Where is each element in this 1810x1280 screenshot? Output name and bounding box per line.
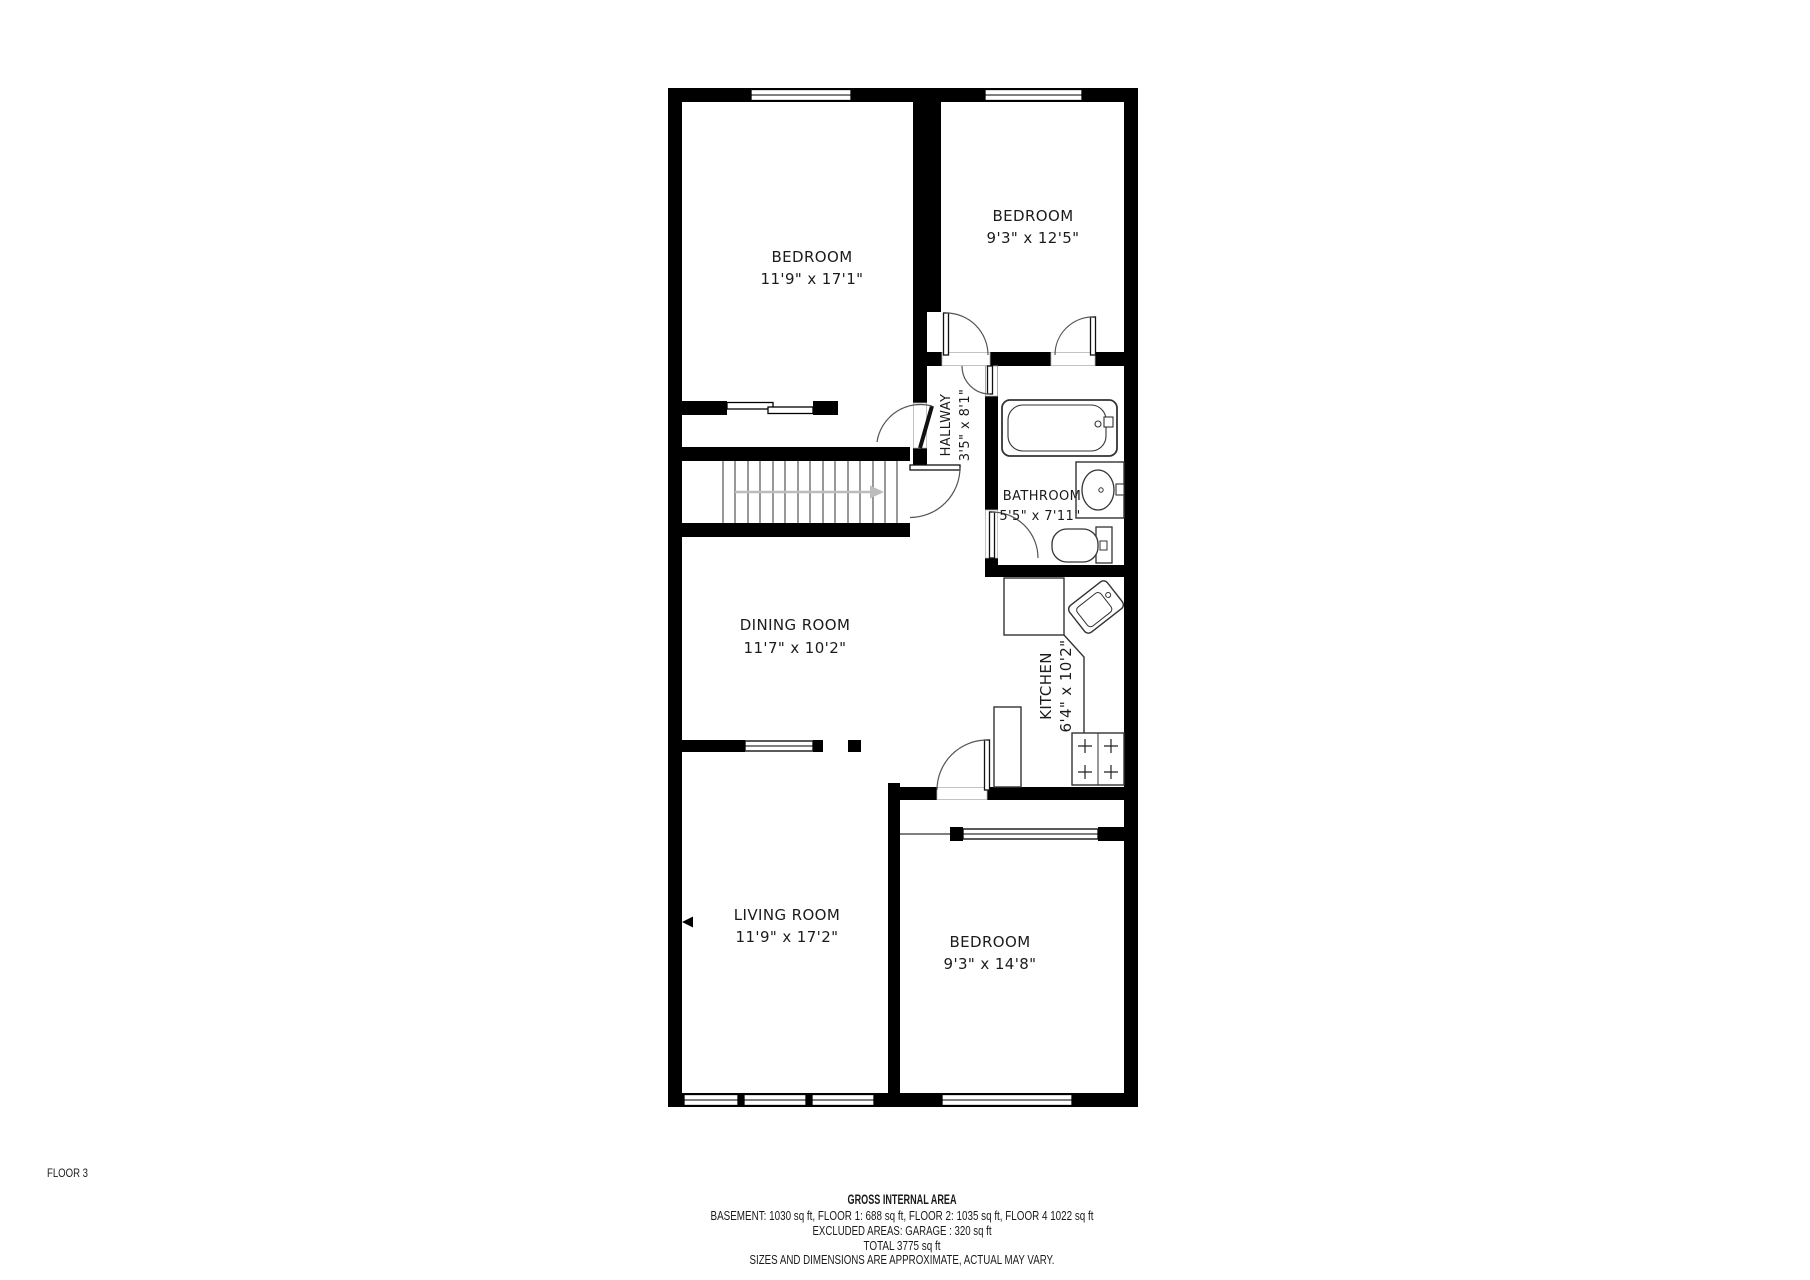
wall-right: [1124, 88, 1138, 1107]
window: [744, 1095, 806, 1106]
footer-total: TOTAL 3775 sq ft: [864, 1238, 941, 1253]
door-stairs-landing: [910, 465, 960, 518]
window: [942, 1095, 1072, 1106]
wall-stairs-top: [682, 447, 910, 461]
room-name: BEDROOM: [992, 207, 1073, 225]
footer-disclaimer: SIZES AND DIMENSIONS ARE APPROXIMATE, AC…: [750, 1252, 1055, 1267]
wall-closet-stub-left: [950, 827, 963, 841]
doorway: [937, 788, 987, 800]
room-dims: 11'9" x 17'1": [761, 270, 864, 288]
wall-mid-b: [990, 352, 1051, 366]
wall-dining-jamb: [848, 740, 861, 752]
closet-panels: [727, 403, 813, 414]
room-dims: 11'9" x 17'2": [736, 928, 839, 946]
room-name: BATHROOM: [1003, 489, 1081, 504]
window: [985, 90, 1082, 101]
doorway: [1051, 353, 1095, 366]
room-dims: 9'3" x 12'5": [987, 229, 1080, 247]
room-bathroom: BATHROOM 5'5" x 7'11": [999, 489, 1081, 524]
interior-window: [745, 741, 813, 751]
room-dims: 9'3" x 14'8": [944, 955, 1037, 973]
room-name: KITCHEN: [1037, 652, 1055, 720]
window: [684, 1095, 738, 1106]
window: [812, 1095, 874, 1106]
bathtub-icon: [1002, 400, 1117, 456]
toilet-icon: [1052, 527, 1112, 563]
wall-mid-c: [1095, 352, 1124, 366]
room-bedroom-top-left: BEDROOM 11'9" x 17'1": [761, 248, 864, 288]
wall-bedroomTL-right: [913, 102, 927, 352]
room-bedroom-bottom: BEDROOM 9'3" x 14'8": [944, 933, 1037, 973]
wall-dining-divider-a: [682, 740, 745, 752]
door-kitchen: [937, 740, 990, 790]
wall-bedroom-divider: [927, 102, 941, 312]
entry-arrow-icon: [682, 917, 693, 928]
room-name: LIVING ROOM: [734, 906, 840, 924]
staircase: [723, 461, 897, 523]
footer-title: GROSS INTERNAL AREA: [848, 1192, 957, 1207]
wall-living-bedroom-divider: [888, 783, 900, 1093]
room-name: DINING ROOM: [740, 616, 851, 634]
footer-areas: BASEMENT: 1030 sq ft, FLOOR 1: 688 sq ft…: [711, 1208, 1094, 1223]
wall-dining-divider-b: [813, 740, 823, 752]
room-dims: 3'5" x 8'1": [958, 389, 973, 462]
wall-hallway-left-a: [913, 366, 927, 403]
room-dims: 5'5" x 7'11": [999, 509, 1080, 524]
wall-bedroomTL-bottom-a: [682, 401, 727, 415]
wall-closet-stub-right: [1098, 827, 1124, 841]
floor-plan-page: BEDROOM 11'9" x 17'1" BEDROOM 9'3" x 12'…: [0, 0, 1810, 1280]
room-kitchen: KITCHEN 6'4" x 10'2": [1037, 640, 1075, 733]
room-name: BEDROOM: [771, 248, 852, 266]
wall-hallway-left-b: [913, 448, 927, 467]
wall-kitchen-bottom-b: [987, 787, 1124, 800]
wall-left: [668, 88, 682, 1107]
stove-icon: [1072, 733, 1124, 785]
kitchen-cabinet: [994, 707, 1021, 787]
floor-label: FLOOR 3: [47, 1166, 88, 1180]
wall-bedroomTL-bottom-b: [813, 401, 838, 415]
wall-kitchen-bottom-a: [900, 787, 937, 800]
room-bedroom-top-right: BEDROOM 9'3" x 12'5": [987, 207, 1080, 247]
closet-front: [900, 829, 1098, 839]
room-dims: 6'4" x 10'2": [1057, 640, 1075, 733]
footer-excluded: EXCLUDED AREAS: GARAGE : 320 sq ft: [813, 1223, 992, 1238]
room-dims: 11'7" x 10'2": [744, 639, 847, 657]
room-name: BEDROOM: [949, 933, 1030, 951]
bathroom-fixtures: [1002, 400, 1124, 563]
door-bedroomTR-right: [1055, 317, 1096, 355]
sink-icon: [1076, 462, 1124, 518]
room-hallway: HALLWAY 3'5" x 8'1": [939, 389, 973, 462]
wall-stairs-bottom: [682, 523, 910, 537]
kitchen-sink-icon: [1067, 579, 1126, 635]
floor-plan-svg: BEDROOM 11'9" x 17'1" BEDROOM 9'3" x 12'…: [0, 0, 1810, 1280]
kitchen-counter: [1004, 578, 1064, 635]
room-living: LIVING ROOM 11'9" x 17'2": [734, 906, 840, 946]
footer: GROSS INTERNAL AREA BASEMENT: 1030 sq ft…: [711, 1192, 1094, 1267]
wall-bathroom-bottom: [985, 565, 1124, 577]
window: [751, 90, 851, 101]
room-dining: DINING ROOM 11'7" x 10'2": [740, 616, 851, 657]
door-bedroomTR-left: [944, 313, 989, 355]
doorway: [942, 353, 990, 366]
room-name: HALLWAY: [939, 394, 954, 457]
wall-mid-a: [913, 352, 942, 366]
